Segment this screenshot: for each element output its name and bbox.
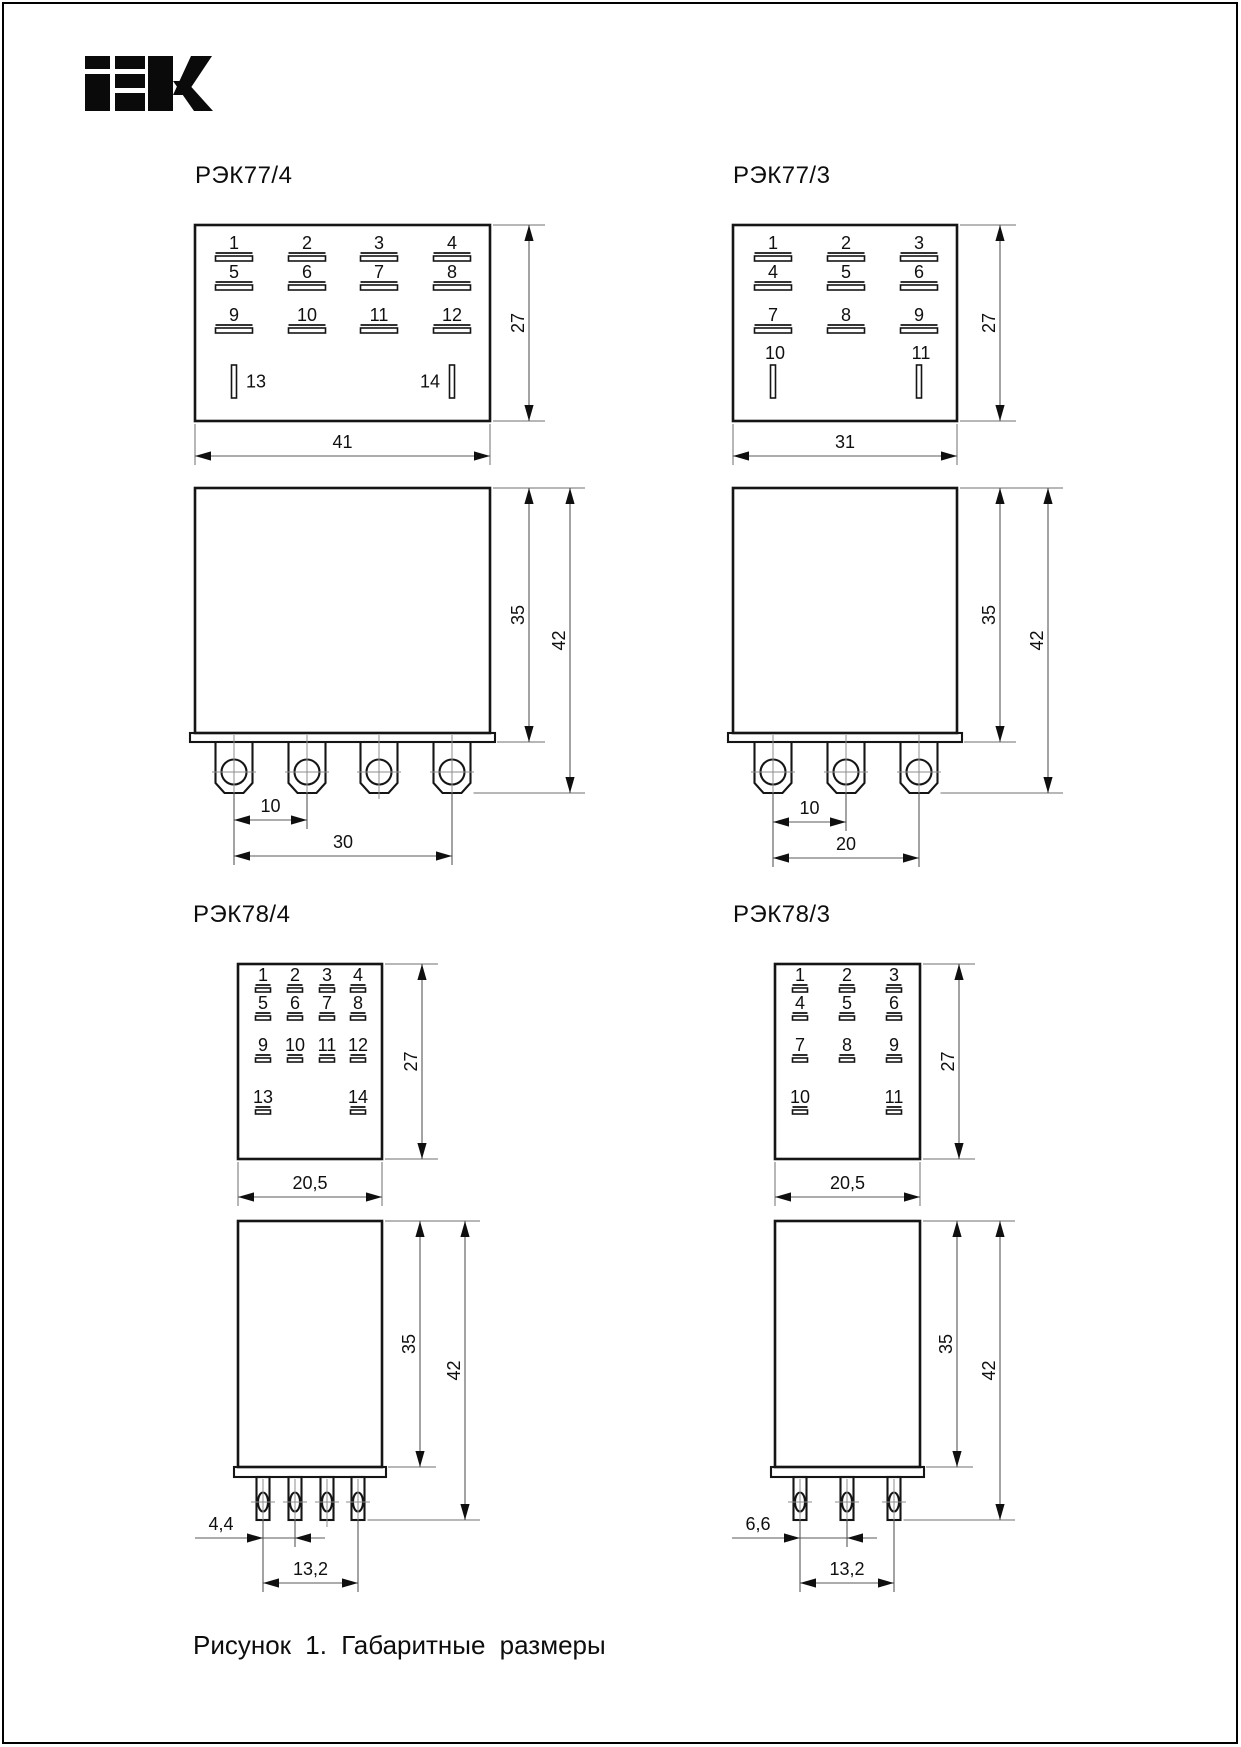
terminal-number: 2 <box>302 233 312 253</box>
terminal-number: 8 <box>353 993 363 1013</box>
terminal-number: 12 <box>348 1035 368 1055</box>
terminal-slot <box>288 988 303 992</box>
svg-text:42: 42 <box>549 630 569 650</box>
terminal-number: 7 <box>322 993 332 1013</box>
terminal-number: 2 <box>841 233 851 253</box>
svg-text:10: 10 <box>260 796 280 816</box>
svg-text:27: 27 <box>508 313 528 333</box>
terminal-slot <box>793 1016 808 1020</box>
pin <box>285 735 329 799</box>
terminal-slot <box>887 1016 902 1020</box>
page: РЭК77/4 РЭК77/3 РЭК78/4 РЭК78/3 12345678… <box>0 0 1241 1747</box>
svg-text:42: 42 <box>444 1360 464 1380</box>
svg-text:10: 10 <box>790 1087 810 1107</box>
pin <box>835 1477 859 1527</box>
svg-text:35: 35 <box>508 605 528 625</box>
rek78_3-front-view: 6,613,23542 <box>732 1221 1015 1592</box>
terminal-number: 11 <box>370 305 389 325</box>
svg-text:11: 11 <box>885 1087 904 1107</box>
terminal-number: 4 <box>768 262 778 282</box>
terminal-slot <box>216 328 253 333</box>
terminal-number: 3 <box>914 233 924 253</box>
terminal-slot <box>840 988 855 992</box>
terminal-slot <box>793 1058 808 1062</box>
terminal-number: 9 <box>258 1035 268 1055</box>
svg-text:13,2: 13,2 <box>829 1559 864 1579</box>
terminal-number: 1 <box>229 233 239 253</box>
terminal-slot <box>256 1058 271 1062</box>
svg-text:30: 30 <box>333 832 353 852</box>
terminal-number: 3 <box>322 965 332 985</box>
svg-text:31: 31 <box>835 432 855 452</box>
terminal-number: 1 <box>795 965 805 985</box>
drawing-canvas: 1234567891011121314412710303542123456789… <box>0 0 1241 1747</box>
svg-text:14: 14 <box>420 372 440 392</box>
terminal-number: 1 <box>768 233 778 253</box>
terminal-slot <box>351 988 366 992</box>
pin <box>788 1477 812 1527</box>
rek78_4-top-view: 123456789101112131420,527 <box>238 964 438 1206</box>
terminal-slot <box>828 285 865 290</box>
terminal-number: 2 <box>842 965 852 985</box>
terminal-slot <box>887 1058 902 1062</box>
terminal-slot <box>361 256 398 261</box>
rek78_3-drawing: 123456789101120,5276,613,23542 <box>732 964 1015 1592</box>
pin <box>283 1477 307 1527</box>
svg-text:20: 20 <box>836 834 856 854</box>
terminal-slot <box>289 256 326 261</box>
rek77_4-front-view: 10303542 <box>190 488 585 865</box>
terminal-slot <box>351 1058 366 1062</box>
terminal-number: 9 <box>229 305 239 325</box>
terminal-slot <box>288 1058 303 1062</box>
terminal-number: 12 <box>442 305 462 325</box>
terminal-number: 6 <box>290 993 300 1013</box>
terminal-slot <box>840 1058 855 1062</box>
terminal-slot <box>256 988 271 992</box>
terminal-number: 4 <box>353 965 363 985</box>
pin <box>357 735 401 799</box>
coil-slot <box>256 1110 271 1114</box>
terminal-number: 1 <box>258 965 268 985</box>
terminal-slot <box>901 328 938 333</box>
terminal-slot <box>887 988 902 992</box>
terminal-slot <box>216 285 253 290</box>
terminal-slot <box>828 328 865 333</box>
svg-text:6,6: 6,6 <box>745 1514 770 1534</box>
coil-slot <box>232 365 237 398</box>
terminal-number: 8 <box>841 305 851 325</box>
coil-slot <box>450 365 455 398</box>
terminal-slot <box>434 328 471 333</box>
terminal-slot <box>840 1016 855 1020</box>
svg-text:11: 11 <box>912 343 931 363</box>
svg-text:10: 10 <box>765 343 785 363</box>
rek77_4-top-view: 12345678910111213144127 <box>195 225 545 465</box>
terminal-number: 7 <box>374 262 384 282</box>
terminal-slot <box>320 988 335 992</box>
pin <box>824 735 868 799</box>
terminal-slot <box>320 1016 335 1020</box>
rek77_3-front-view: 10203542 <box>728 488 1063 867</box>
pin <box>430 735 474 799</box>
terminal-number: 6 <box>914 262 924 282</box>
terminal-slot <box>361 285 398 290</box>
terminal-number: 7 <box>768 305 778 325</box>
terminal-slot <box>755 256 792 261</box>
svg-text:20,5: 20,5 <box>830 1173 865 1193</box>
terminal-number: 11 <box>318 1035 337 1055</box>
svg-text:4,4: 4,4 <box>208 1514 233 1534</box>
terminal-number: 10 <box>297 305 317 325</box>
pin <box>882 1477 906 1527</box>
terminal-slot <box>434 285 471 290</box>
coil-slot <box>771 365 776 398</box>
terminal-number: 2 <box>290 965 300 985</box>
terminal-slot <box>901 256 938 261</box>
terminal-number: 5 <box>842 993 852 1013</box>
rek77_4-drawing: 1234567891011121314412710303542 <box>190 225 585 865</box>
svg-text:14: 14 <box>348 1087 368 1107</box>
terminal-number: 6 <box>302 262 312 282</box>
terminal-number: 10 <box>285 1035 305 1055</box>
coil-slot <box>351 1110 366 1114</box>
pin <box>315 1477 339 1527</box>
terminal-slot <box>289 285 326 290</box>
terminal-slot <box>755 285 792 290</box>
figure-caption: Рисунок 1. Габаритные размеры <box>193 1630 606 1661</box>
terminal-slot <box>320 1058 335 1062</box>
terminal-slot <box>288 1016 303 1020</box>
rek78_3-top-view: 123456789101120,527 <box>775 964 975 1206</box>
terminal-number: 5 <box>841 262 851 282</box>
terminal-number: 6 <box>889 993 899 1013</box>
terminal-slot <box>289 328 326 333</box>
svg-text:27: 27 <box>401 1051 421 1071</box>
terminal-number: 5 <box>229 262 239 282</box>
pin <box>346 1477 370 1527</box>
svg-text:13,2: 13,2 <box>293 1559 328 1579</box>
coil-slot <box>793 1110 808 1114</box>
terminal-slot <box>351 1016 366 1020</box>
terminal-number: 3 <box>889 965 899 985</box>
svg-text:27: 27 <box>979 313 999 333</box>
svg-text:35: 35 <box>979 605 999 625</box>
terminal-number: 3 <box>374 233 384 253</box>
svg-text:20,5: 20,5 <box>292 1173 327 1193</box>
svg-text:13: 13 <box>246 372 266 392</box>
svg-text:42: 42 <box>979 1360 999 1380</box>
terminal-slot <box>755 328 792 333</box>
rek78_4-drawing: 123456789101112131420,5274,413,23542 <box>195 964 480 1592</box>
svg-text:35: 35 <box>399 1334 419 1354</box>
pin <box>897 735 941 799</box>
coil-slot <box>887 1110 902 1114</box>
pin <box>251 1477 275 1527</box>
terminal-slot <box>361 328 398 333</box>
terminal-slot <box>434 256 471 261</box>
svg-text:10: 10 <box>799 798 819 818</box>
svg-text:13: 13 <box>253 1087 273 1107</box>
terminal-slot <box>256 1016 271 1020</box>
terminal-number: 9 <box>889 1035 899 1055</box>
rek77_3-drawing: 1234567891011312710203542 <box>728 225 1063 867</box>
terminal-number: 9 <box>914 305 924 325</box>
svg-text:35: 35 <box>936 1334 956 1354</box>
svg-text:27: 27 <box>938 1051 958 1071</box>
pin <box>751 735 795 799</box>
terminal-number: 5 <box>258 993 268 1013</box>
rek77_3-top-view: 12345678910113127 <box>733 225 1016 465</box>
svg-text:42: 42 <box>1027 630 1047 650</box>
coil-slot <box>917 365 922 398</box>
terminal-number: 4 <box>795 993 805 1013</box>
terminal-number: 4 <box>447 233 457 253</box>
terminal-slot <box>901 285 938 290</box>
terminal-slot <box>828 256 865 261</box>
pin <box>212 735 256 799</box>
terminal-slot <box>793 988 808 992</box>
terminal-number: 8 <box>447 262 457 282</box>
terminal-number: 8 <box>842 1035 852 1055</box>
terminal-number: 7 <box>795 1035 805 1055</box>
svg-text:41: 41 <box>332 432 352 452</box>
terminal-slot <box>216 256 253 261</box>
rek78_4-front-view: 4,413,23542 <box>195 1221 480 1592</box>
